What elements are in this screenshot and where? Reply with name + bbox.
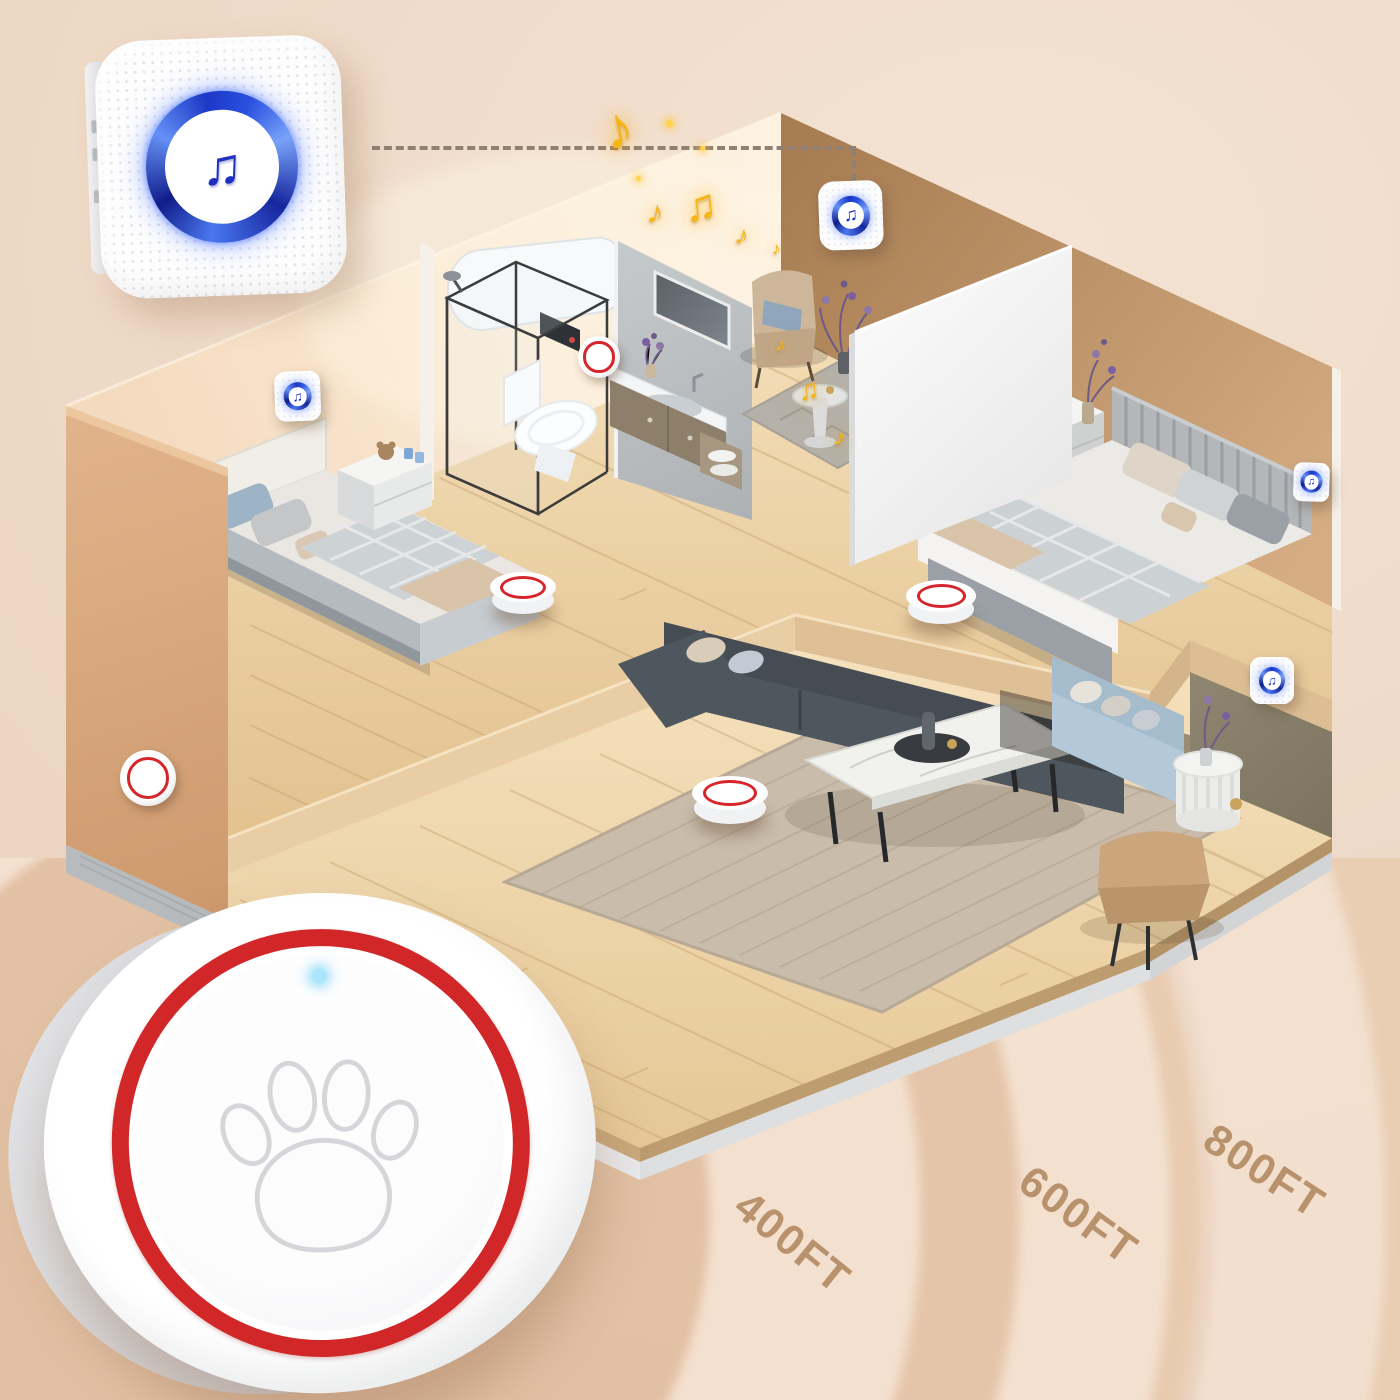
paw-button-living-room [692, 776, 768, 828]
sparkle [666, 120, 673, 127]
paw-button-entry-wall [120, 750, 176, 806]
music-note-icon: ♫ [843, 204, 858, 226]
receiver-unit: ♫ [1250, 657, 1294, 705]
receiver-led-ring: ♫ [283, 382, 312, 411]
sparkle [700, 146, 705, 151]
paw-button-floor-right [906, 580, 976, 628]
left-facade [66, 406, 228, 948]
chime-receiver-product: ♫ [84, 34, 349, 301]
music-note-icon: ♪ [772, 240, 781, 257]
paw-print-icon [194, 1027, 448, 1287]
music-note-icon: ♫ [1267, 673, 1277, 688]
music-note-icon: ♫ [292, 389, 303, 404]
sparkle [636, 176, 641, 181]
music-note-icon: ♫ [796, 375, 821, 406]
receiver-unit: ♫ [1293, 462, 1330, 502]
paw-button-closeup [0, 879, 611, 1400]
receiver-led-ring: ♫ [1259, 667, 1285, 694]
product-scene: { "scene": { "description": "Isometric c… [0, 0, 1400, 1400]
receiver-led-ring: ♫ [831, 195, 871, 236]
music-note-icon: ♫ [1307, 476, 1316, 488]
paw-button-floor-left [490, 572, 556, 618]
music-note-icon: ♫ [201, 135, 244, 198]
right-wall-edge [1332, 367, 1341, 611]
receiver-unit: ♫ [274, 371, 322, 422]
paw-button-bathroom-wall [578, 336, 620, 378]
receiver-center: ♫ [163, 108, 281, 226]
music-note-icon: ♫ [682, 182, 719, 229]
button-led [311, 968, 326, 983]
receiver-led-ring: ♫ [1300, 470, 1322, 493]
receiver-unit: ♫ [818, 180, 884, 251]
